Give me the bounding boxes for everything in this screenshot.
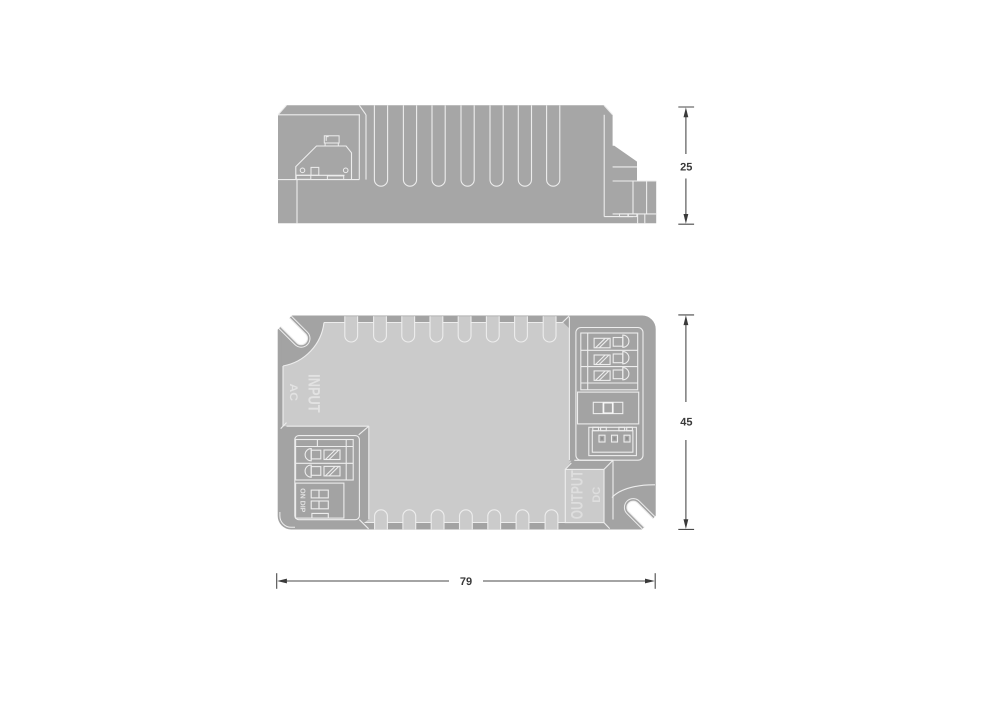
svg-text:25: 25: [680, 161, 692, 173]
svg-text:AC: AC: [287, 384, 299, 402]
svg-text:45: 45: [680, 416, 692, 428]
svg-text:OUTPUT: OUTPUT: [569, 470, 587, 519]
svg-text:INPUT: INPUT: [304, 374, 322, 413]
svg-text:ON DIP: ON DIP: [299, 488, 306, 512]
svg-text:79: 79: [460, 576, 472, 588]
svg-text:DC: DC: [591, 487, 603, 503]
